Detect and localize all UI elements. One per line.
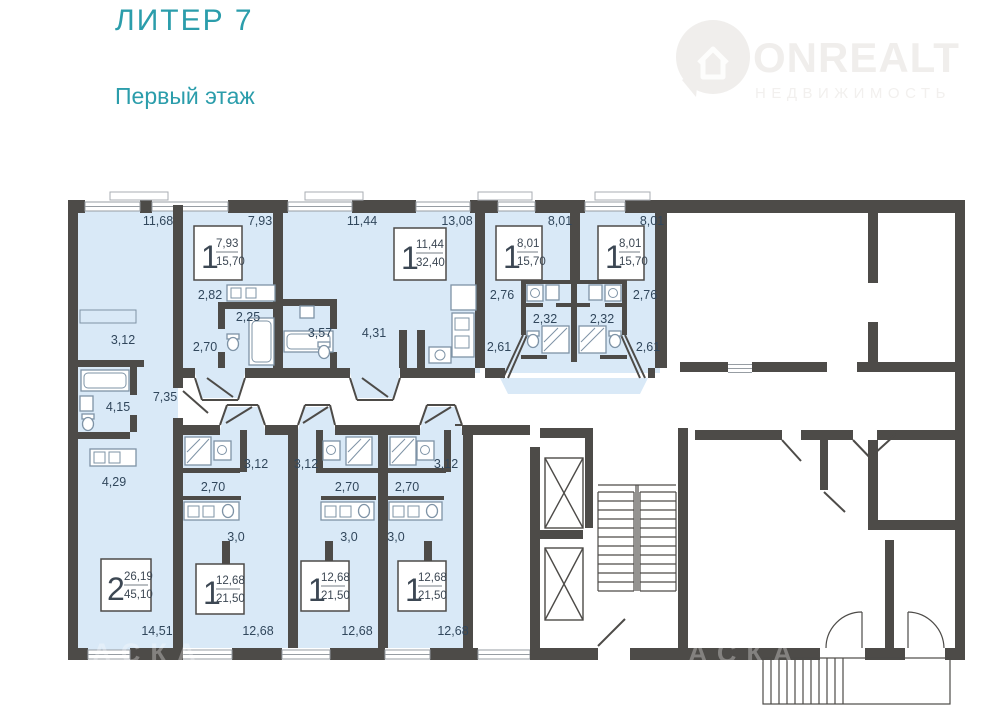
bathtub-icon [81, 370, 129, 391]
dimension-label: 4,15 [106, 400, 130, 414]
living-area: 12,68 [321, 572, 350, 584]
brand-logo: ONREALT НЕДВИЖИМОСТЬ [676, 20, 960, 102]
toilet-icon [609, 331, 621, 348]
balcony-ledge [595, 192, 650, 200]
dimension-label: 3,12 [244, 457, 268, 471]
dimension-label: 14,51 [141, 624, 172, 638]
balcony-ledge [110, 192, 168, 200]
dimension-label: 2,76 [490, 288, 514, 302]
kitchen-counter [452, 313, 474, 357]
dimension-label: 11,44 [347, 214, 377, 228]
watermark-text: АСКА [92, 638, 206, 668]
apartment-label-801b: 1 8,01 15,70 [598, 226, 648, 280]
dimension-label: 2,76 [633, 288, 657, 302]
dimension-label: 2,61 [487, 340, 511, 354]
apartment-1268c-vestibule [420, 407, 462, 430]
dimension-label: 4,29 [102, 475, 126, 489]
shower-icon [542, 326, 569, 353]
stove-icon [429, 347, 451, 363]
dimension-label: 3,12 [294, 457, 318, 471]
page-title: ЛИТЕР 7 [115, 4, 254, 37]
living-area: 12,68 [216, 575, 245, 587]
apartment-label-1268a: 1 12,68 21,50 [196, 564, 245, 614]
dimension-label: 2,61 [636, 340, 660, 354]
dimension-label: 2,32 [590, 312, 614, 326]
apartment-801-vestibule [500, 378, 648, 394]
living-area: 26,19 [124, 571, 153, 583]
dimension-label: 2,82 [198, 288, 222, 302]
staircase [598, 485, 676, 591]
washer-icon [417, 441, 434, 460]
total-area: 32,40 [416, 257, 445, 269]
map-pin-house-icon [676, 20, 750, 97]
living-area: 8,01 [517, 238, 539, 250]
kitchen-counter [184, 502, 239, 520]
floor-subtitle: Первый этаж [115, 83, 255, 109]
apartment-1144-vestibule [350, 373, 400, 398]
sink-icon [546, 285, 559, 300]
apartment-label-793: 1 7,93 15,70 [194, 226, 245, 280]
shower-icon [390, 437, 416, 465]
room-count: 2 [107, 571, 125, 607]
brand-name: ONREALT [753, 34, 960, 81]
dimension-label: 12,68 [242, 624, 273, 638]
dimension-label: 3,0 [340, 530, 357, 544]
living-area: 7,93 [216, 238, 238, 250]
total-area: 15,70 [216, 256, 245, 268]
elevator-shaft-2 [545, 548, 583, 620]
dimension-label: 8,01 [640, 214, 664, 228]
sink-icon [300, 306, 314, 318]
dimension-label: 12,68 [341, 624, 372, 638]
apartment-label-1268b: 1 12,68 21,50 [301, 561, 350, 611]
apartment-label-1268c: 1 12,68 21,50 [398, 561, 447, 611]
dimension-label: 3,0 [387, 530, 404, 544]
total-area: 15,70 [619, 256, 648, 268]
dimension-label: 3,57 [308, 326, 332, 340]
dimension-label: 2,32 [533, 312, 557, 326]
floor-plan-page: ЛИТЕР 7 Первый этаж ONREALT НЕДВИЖИМОСТЬ [0, 0, 991, 716]
toilet-icon [82, 414, 94, 431]
sink-icon [589, 285, 602, 300]
total-area: 15,70 [517, 256, 546, 268]
apartment-label-801a: 1 8,01 15,70 [496, 226, 546, 280]
dimension-label: 8,01 [548, 214, 572, 228]
washer-icon [605, 285, 621, 301]
kitchen-counter [321, 502, 374, 520]
washer-icon [214, 441, 231, 460]
shower-icon [346, 437, 372, 465]
washer-icon [527, 285, 543, 301]
total-area: 21,50 [216, 593, 245, 605]
apartment-793-vestibule [195, 373, 245, 398]
dimension-label: 11,68 [143, 214, 173, 228]
apartment-label-1144: 1 11,44 32,40 [394, 228, 446, 280]
dimension-label: 2,70 [395, 480, 419, 494]
living-area: 12,68 [418, 572, 447, 584]
dimension-label: 3,0 [227, 530, 244, 544]
total-area: 45,10 [124, 589, 153, 601]
dimension-label: 12,68 [437, 624, 468, 638]
total-area: 21,50 [418, 590, 447, 602]
dimension-label: 3,12 [111, 333, 135, 347]
dimension-label: 7,35 [153, 390, 177, 404]
balcony-ledge [478, 192, 532, 200]
sink-icon [80, 396, 93, 411]
toilet-icon [227, 334, 239, 351]
living-area: 8,01 [619, 238, 641, 250]
bathtub-icon [249, 318, 274, 365]
dimension-label: 2,70 [335, 480, 359, 494]
dimension-label: 2,70 [193, 340, 217, 354]
brand-tagline: НЕДВИЖИМОСТЬ [755, 85, 951, 102]
fridge-icon [451, 285, 476, 310]
dimension-label: 3,12 [434, 457, 458, 471]
balcony-ledge [305, 192, 363, 200]
toilet-icon [318, 342, 330, 359]
apartment-1268a-vestibule [220, 407, 265, 430]
dimension-label: 7,93 [248, 214, 272, 228]
washer-icon [323, 441, 340, 460]
dimension-label: 13,08 [441, 214, 472, 228]
kitchen-counter [389, 502, 442, 520]
kitchen-counter [90, 449, 136, 466]
shower-icon [579, 326, 606, 353]
dimension-label: 2,70 [201, 480, 225, 494]
watermark-text: АСКА [688, 638, 802, 668]
total-area: 21,50 [321, 590, 350, 602]
shower-icon [185, 437, 211, 465]
apartment-label-2room: 2 26,19 45,10 [101, 559, 153, 611]
elevator-shaft-1 [545, 458, 583, 528]
dimension-label: 4,31 [362, 326, 386, 340]
dimension-label: 2,25 [236, 310, 260, 324]
kitchen-counter [227, 285, 275, 301]
toilet-icon [527, 331, 539, 348]
living-area: 11,44 [416, 239, 445, 251]
